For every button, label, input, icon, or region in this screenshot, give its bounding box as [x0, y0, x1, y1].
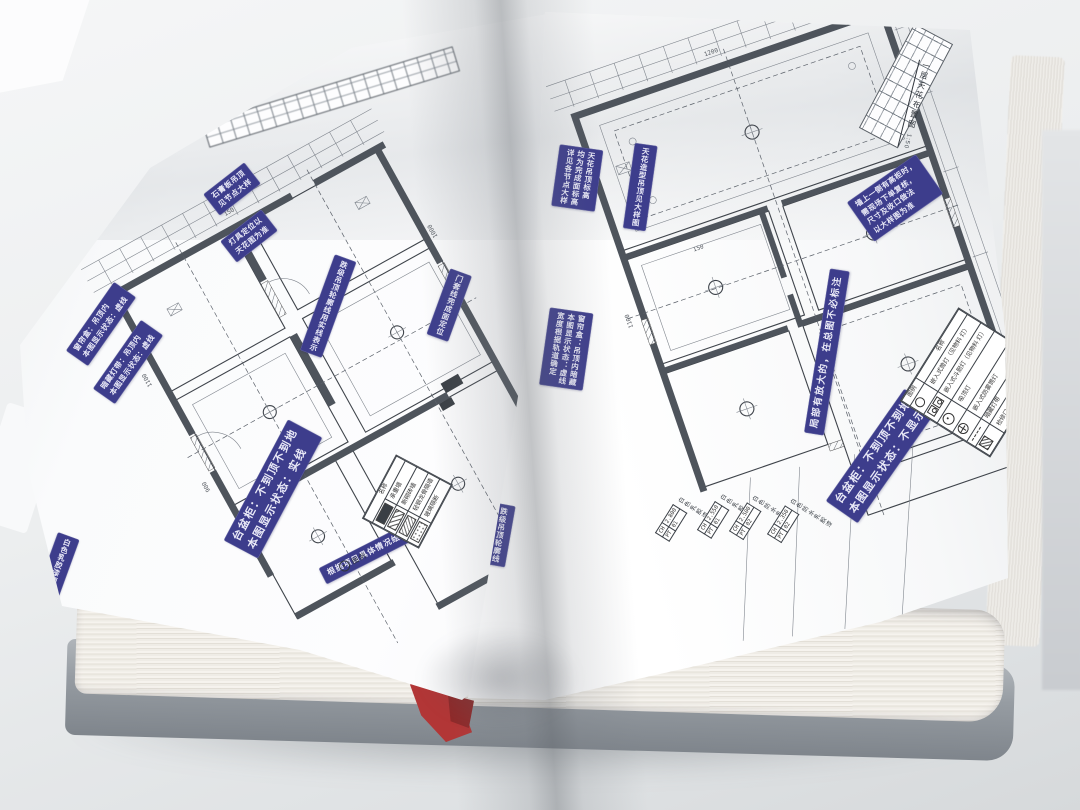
- drawing-scale: 1:50: [902, 133, 912, 150]
- dim-text: 1100: [141, 372, 154, 388]
- photo-of-open-book: 150 1100 900 1000: [0, 0, 1080, 810]
- dim-text: 150: [692, 243, 705, 253]
- fog-downlight-symbol: [955, 421, 970, 436]
- ceiling-lamp-symbol: [940, 410, 957, 427]
- annotation-label-ceiling-level: 天花吊顶标高 均为完成面标高 详见各节点大样: [551, 144, 603, 211]
- access-panel-symbol: [979, 435, 994, 450]
- dim-text: 900: [201, 480, 213, 493]
- background-object: [1042, 130, 1080, 690]
- downlight-symbol: [913, 395, 927, 409]
- background-paper-corner: [0, 0, 94, 96]
- spine-foot-shadow: [420, 628, 580, 728]
- dim-text: 1200: [703, 47, 719, 58]
- dim-text: 1100: [624, 313, 635, 329]
